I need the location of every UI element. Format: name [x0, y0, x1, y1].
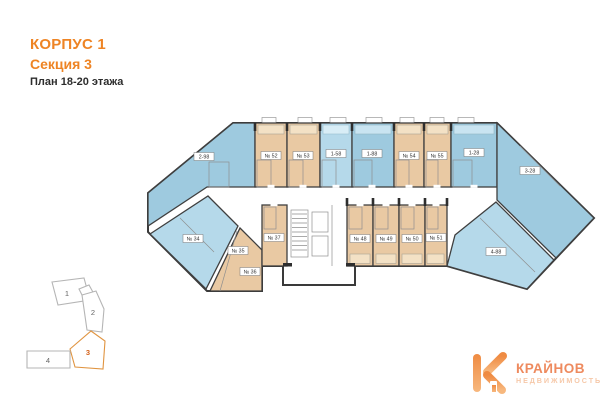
balcony-tab [262, 118, 276, 124]
balcony-tab [430, 118, 444, 124]
minimap-label-4: 4 [46, 356, 50, 365]
krainov-logo: КРАЙНОВ НЕДВИЖИМОСТЬ [471, 351, 602, 395]
svg-text:№ 34: № 34 [186, 237, 199, 243]
unit-label: № 55 [427, 152, 447, 160]
svg-text:1-58: 1-58 [331, 152, 342, 158]
minimap: 1 2 3 4 [27, 278, 105, 369]
svg-text:№ 52: № 52 [264, 154, 277, 160]
unit-label: № 49 [376, 235, 396, 243]
svg-text:4-88: 4-88 [491, 250, 502, 256]
svg-text:№ 36: № 36 [243, 270, 256, 276]
unit-label: 4-88 [486, 248, 506, 256]
balcony-tab [330, 118, 346, 124]
floor-plan-svg: 2-98 № 34 № 35 № 36 № 37 № 52 № 53 1-58 … [0, 0, 605, 403]
unit-label: 3-28 [520, 167, 540, 175]
svg-text:№ 51: № 51 [429, 236, 442, 242]
unit-label: № 52 [261, 152, 281, 160]
balcony-tab [458, 118, 474, 124]
svg-text:№ 37: № 37 [267, 236, 280, 242]
svg-text:3-28: 3-28 [525, 169, 536, 175]
unit-label: № 37 [264, 234, 284, 242]
minimap-label-2: 2 [91, 308, 95, 317]
minimap-label-1: 1 [65, 289, 69, 298]
svg-text:№ 54: № 54 [402, 154, 415, 160]
logo-name: КРАЙНОВ [516, 362, 602, 376]
krainov-logo-icon [471, 351, 509, 395]
unit-label: № 48 [350, 235, 370, 243]
svg-text:1-88: 1-88 [367, 152, 378, 158]
unit-label: 2-98 [194, 153, 214, 161]
svg-text:№ 50: № 50 [405, 237, 418, 243]
svg-text:№ 48: № 48 [353, 237, 366, 243]
svg-text:2-98: 2-98 [199, 155, 210, 161]
unit-label: № 34 [183, 235, 203, 243]
unit-label: № 53 [293, 152, 313, 160]
page-root: { "header": { "building": "КОРПУС 1", "s… [0, 0, 605, 403]
logo-subtitle: НЕДВИЖИМОСТЬ [516, 377, 602, 384]
balcony-tab [298, 118, 312, 124]
unit-label: № 35 [228, 247, 248, 255]
unit-label: № 36 [240, 268, 260, 276]
svg-text:№ 53: № 53 [296, 154, 309, 160]
unit-label: 1-88 [362, 150, 382, 158]
unit-label: 1-58 [326, 150, 346, 158]
svg-text:№ 55: № 55 [430, 154, 443, 160]
unit-label: № 51 [426, 234, 446, 242]
svg-text:№ 35: № 35 [231, 249, 244, 255]
balcony-tab [366, 118, 382, 124]
unit-label: № 54 [399, 152, 419, 160]
unit-label: № 50 [402, 235, 422, 243]
balcony-tab [400, 118, 414, 124]
minimap-label-3: 3 [86, 348, 90, 357]
svg-text:1-28: 1-28 [469, 151, 480, 157]
svg-text:№ 49: № 49 [379, 237, 392, 243]
unit-label: 1-28 [464, 149, 484, 157]
